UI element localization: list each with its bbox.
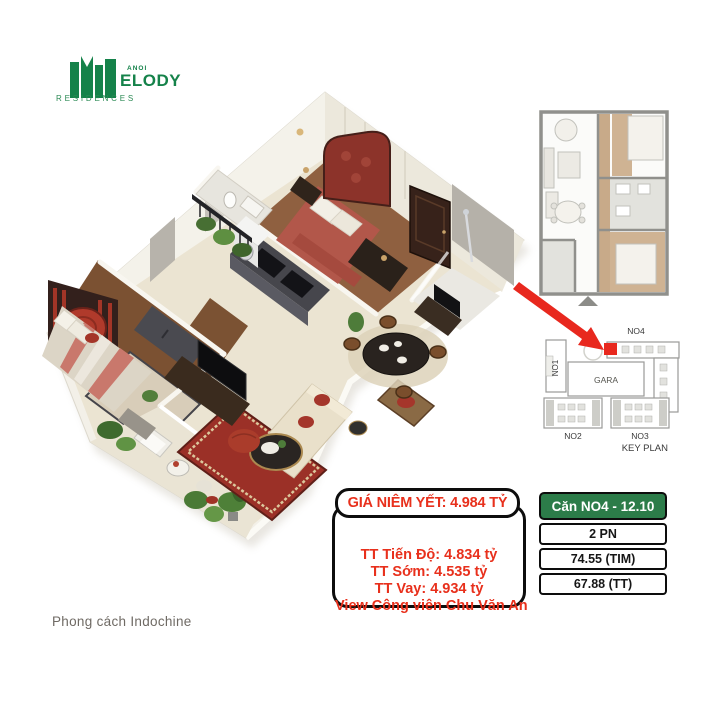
dining-chair — [430, 346, 446, 358]
plan-bed — [616, 244, 656, 284]
toilet — [224, 192, 236, 208]
plan-dining — [555, 201, 581, 223]
plant — [232, 243, 252, 257]
unit-title: Căn NO4 - 12.10 — [539, 492, 667, 520]
headboard — [324, 132, 390, 206]
price-box: TT Tiến Độ: 4.834 tỷ TT Sớm: 4.535 tỷ TT… — [331, 488, 527, 608]
unit-info-table: Căn NO4 - 12.10 2 PN 74.55 (TIM) 67.88 (… — [539, 492, 667, 595]
plan-bath — [543, 240, 575, 292]
brand-logo: ANOI ELODY RESIDENCES — [70, 56, 200, 108]
unit-marker — [604, 343, 617, 355]
plant — [97, 421, 123, 439]
balcony-stool — [196, 480, 212, 492]
north-pointer — [578, 296, 598, 306]
style-caption: Phong cách Indochine — [52, 614, 192, 629]
ottoman — [228, 429, 260, 453]
dining-chair — [396, 386, 412, 398]
brand-name-big: ELODY — [120, 71, 181, 91]
dining-table — [363, 333, 429, 375]
payment-line: TT Sớm: 4.535 tỷ — [335, 564, 523, 581]
apartment-3d-render — [42, 92, 530, 548]
shower-head — [463, 209, 469, 215]
listed-price-header: GIÁ NIÊM YẾT: 4.984 TỶ — [335, 488, 520, 518]
plant-pot — [228, 512, 238, 521]
plant — [213, 229, 235, 245]
unit-area-tim: 74.55 (TIM) — [539, 548, 667, 570]
brand-subtitle: RESIDENCES — [56, 94, 136, 103]
payment-line: TT Tiến Độ: 4.834 tỷ — [335, 547, 523, 564]
unit-bedrooms: 2 PN — [539, 523, 667, 545]
keyplan-label-no3: NO3 — [631, 431, 649, 441]
sofa-pillow — [314, 394, 330, 406]
view-line: View Công viên Chu Văn An — [335, 598, 523, 615]
building-no4 — [607, 342, 679, 358]
plant — [204, 506, 224, 522]
wall-sconce — [297, 129, 304, 136]
keyplan-label-no1: NO1 — [551, 359, 560, 376]
plan-bed — [628, 116, 663, 160]
dining-chair — [380, 316, 396, 328]
keyplan-title: KEY PLAN — [622, 443, 668, 454]
unit-area-tt: 67.88 (TT) — [539, 573, 667, 595]
price-details-panel: TT Tiến Độ: 4.834 tỷ TT Sớm: 4.535 tỷ TT… — [332, 504, 526, 608]
key-plan: NO4 NO1 GARA NO2 NO — [544, 326, 679, 454]
plant — [348, 312, 364, 332]
garage-label: GARA — [594, 375, 618, 385]
plant — [116, 437, 136, 451]
payment-line: TT Vay: 4.934 tỷ — [335, 581, 523, 598]
mini-floor-plan — [541, 112, 667, 306]
plant — [142, 390, 158, 402]
sofa-pillow — [298, 416, 314, 428]
flyer: NO4 NO1 GARA NO2 NO — [0, 0, 717, 717]
keyplan-label-no2: NO2 — [564, 431, 582, 441]
plant — [184, 491, 208, 509]
drum-stool — [349, 421, 367, 435]
dining-chair — [344, 338, 360, 350]
lamp — [303, 167, 309, 173]
plant — [196, 217, 216, 231]
keyplan-label-no4: NO4 — [627, 326, 645, 336]
